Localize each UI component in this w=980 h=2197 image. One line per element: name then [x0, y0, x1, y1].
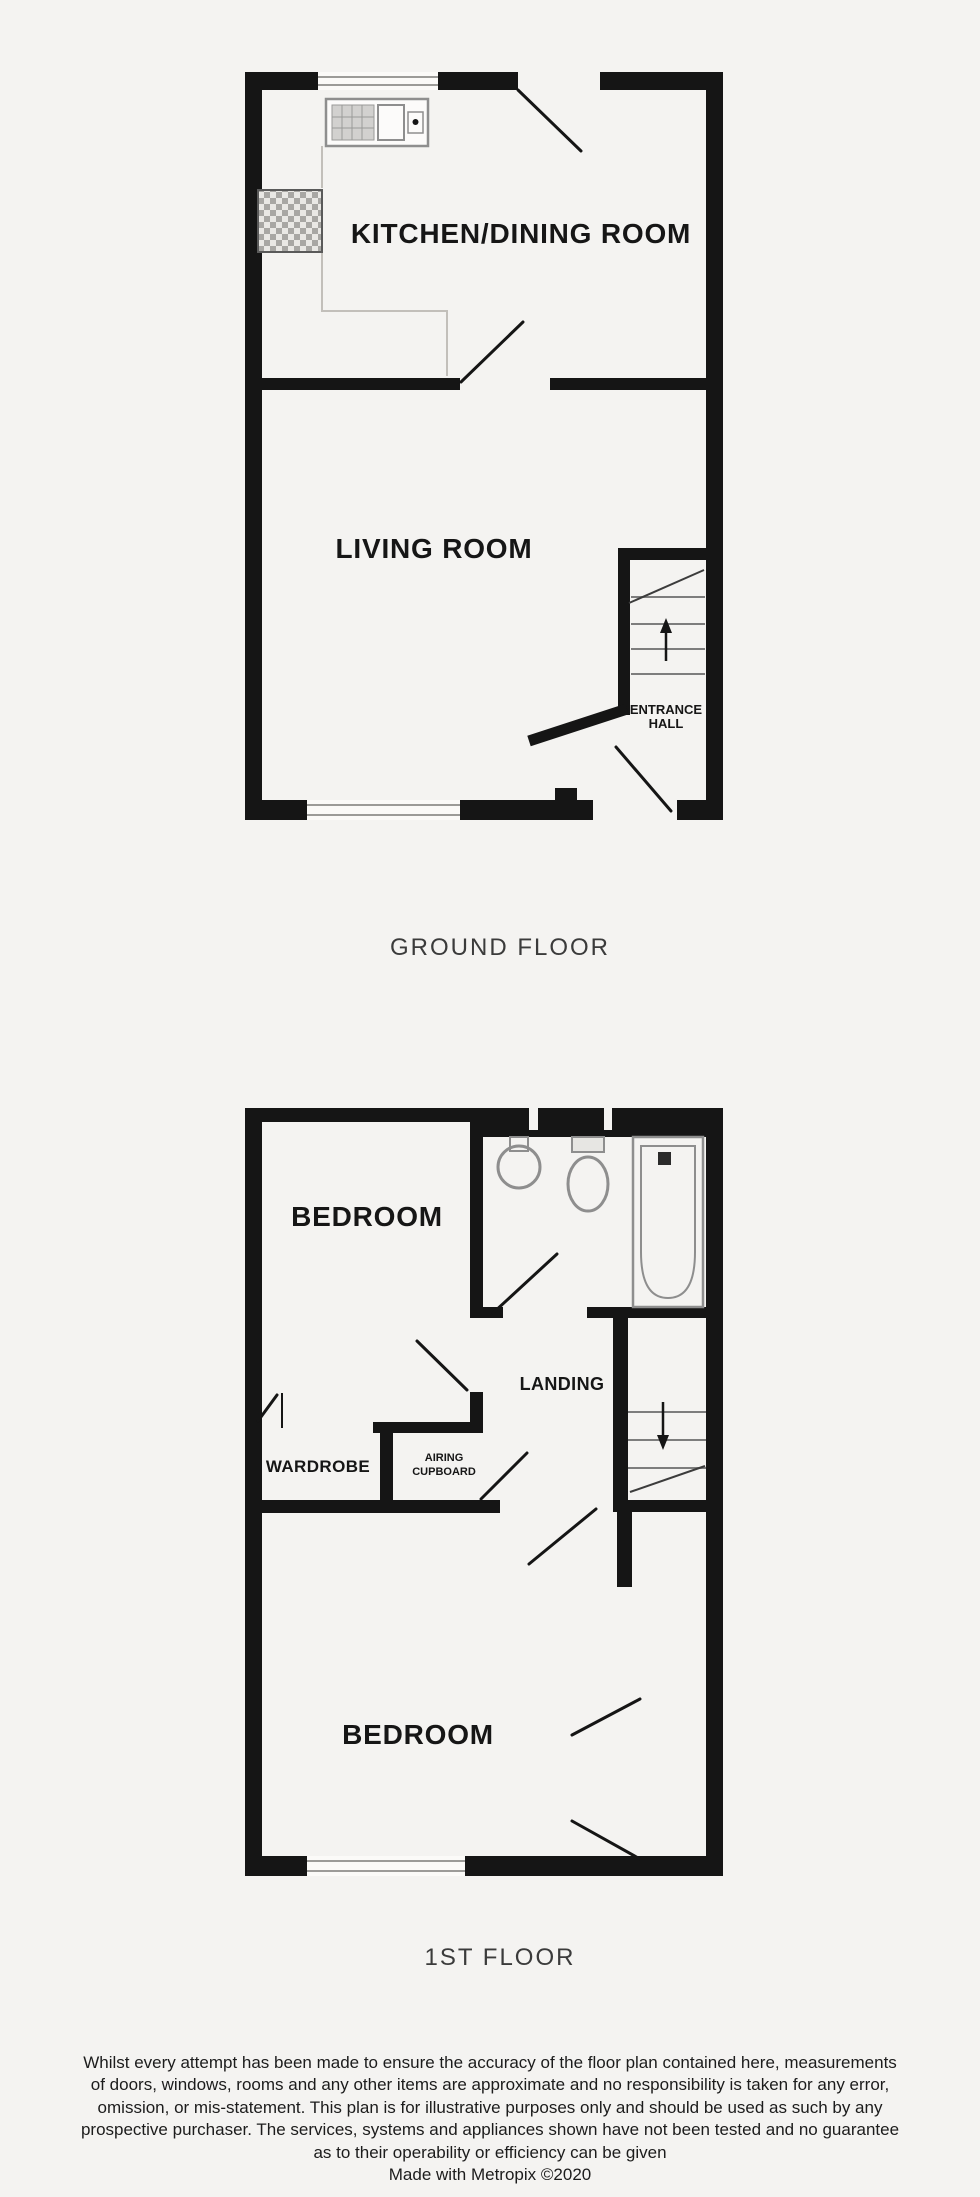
hall-wall-stub [555, 788, 577, 802]
airing-cupboard-door-swing [481, 1453, 527, 1499]
landing-label: LANDING [520, 1374, 605, 1394]
right-wall [706, 1108, 723, 1876]
disclaimer-line: as to their operability or efficiency ca… [0, 2142, 980, 2164]
bedroom-back-lower-swing [572, 1821, 640, 1859]
living-room-label: LIVING ROOM [335, 533, 532, 564]
kitchen-counter-outline [322, 146, 447, 376]
disclaimer-line: omission, or mis-statement. This plan is… [0, 2097, 980, 2119]
entrance-hall-label-line1: ENTRANCE [630, 702, 703, 717]
floorplan-page: KITCHEN/DINING ROOM LIVING ROOM ENTRANCE… [0, 0, 980, 2197]
back-door-opening [518, 72, 600, 90]
top-wall [245, 72, 723, 90]
stairwell-side-wall [613, 1318, 628, 1512]
living-room-window [307, 800, 460, 820]
disclaimer-text: Whilst every attempt has been made to en… [0, 2052, 980, 2186]
bathroom-south-wall [587, 1307, 706, 1318]
bath-tap-icon [658, 1152, 671, 1165]
landing-wall-stub [617, 1512, 632, 1587]
disclaimer-line: of doors, windows, rooms and any other i… [0, 2074, 980, 2096]
hob-icon [258, 190, 322, 252]
ground-floor-caption: GROUND FLOOR [10, 934, 980, 962]
bathroom-top-wall [480, 1108, 723, 1137]
right-wall [706, 72, 723, 820]
bathtub-icon [633, 1137, 703, 1307]
airing-cupboard-label-line1: AIRING [425, 1452, 464, 1464]
bedroom-back-upper-swing [572, 1699, 640, 1735]
bedroom-back-label: BEDROOM [342, 1719, 494, 1750]
kitchen-living-wall-left [250, 378, 460, 390]
sink-icon [326, 99, 428, 146]
disclaimer-line: Whilst every attempt has been made to en… [0, 2052, 980, 2074]
bedroom-front-door-swing [417, 1341, 467, 1390]
bathroom-wall-notch [604, 1108, 612, 1130]
stairs-up-icon [629, 570, 705, 674]
basin-icon [498, 1137, 540, 1188]
left-wall [245, 72, 262, 820]
stairs-side-wall [618, 548, 630, 715]
bedroom-divider-wall [245, 1500, 500, 1513]
hall-angled-wall [529, 709, 627, 741]
bathroom-wall-notch [529, 1108, 538, 1130]
stairwell-south-wall [613, 1500, 723, 1512]
entrance-hall-label-line2: HALL [649, 716, 684, 731]
bedroom-back-door-swing [529, 1509, 596, 1564]
bedroom-back-window [307, 1856, 465, 1876]
stairs-top-wall [618, 548, 706, 560]
disclaimer-line: prospective purchaser. The services, sys… [0, 2119, 980, 2141]
stairs-down-icon [628, 1402, 706, 1492]
kitchen-door-swing [461, 322, 523, 382]
disclaimer-line: Made with Metropix ©2020 [0, 2164, 980, 2186]
toilet-icon [568, 1137, 608, 1211]
bathroom-partition-upper [470, 1122, 483, 1318]
bathroom-door-swing [493, 1254, 557, 1313]
ground-floor-plan: KITCHEN/DINING ROOM LIVING ROOM ENTRANCE… [245, 72, 723, 820]
back-door-swing [518, 90, 581, 151]
kitchen-window [318, 72, 438, 90]
wardrobe-partition [380, 1433, 393, 1508]
wardrobe-label: WARDROBE [266, 1457, 370, 1476]
first-floor-caption: 1ST FLOOR [10, 1944, 980, 1972]
first-floor-plan: BEDROOM LANDING WARDROBE AIRING CUPBOARD… [245, 1108, 723, 1876]
left-wall [245, 1108, 262, 1876]
cupboard-top-wall [373, 1422, 483, 1433]
bedroom-front-label: BEDROOM [291, 1201, 443, 1232]
kitchen-label: KITCHEN/DINING ROOM [351, 218, 691, 249]
kitchen-living-wall-right [550, 378, 706, 390]
floor-plan-drawing: KITCHEN/DINING ROOM LIVING ROOM ENTRANCE… [0, 0, 980, 2197]
airing-cupboard-label-line2: CUPBOARD [412, 1466, 476, 1478]
